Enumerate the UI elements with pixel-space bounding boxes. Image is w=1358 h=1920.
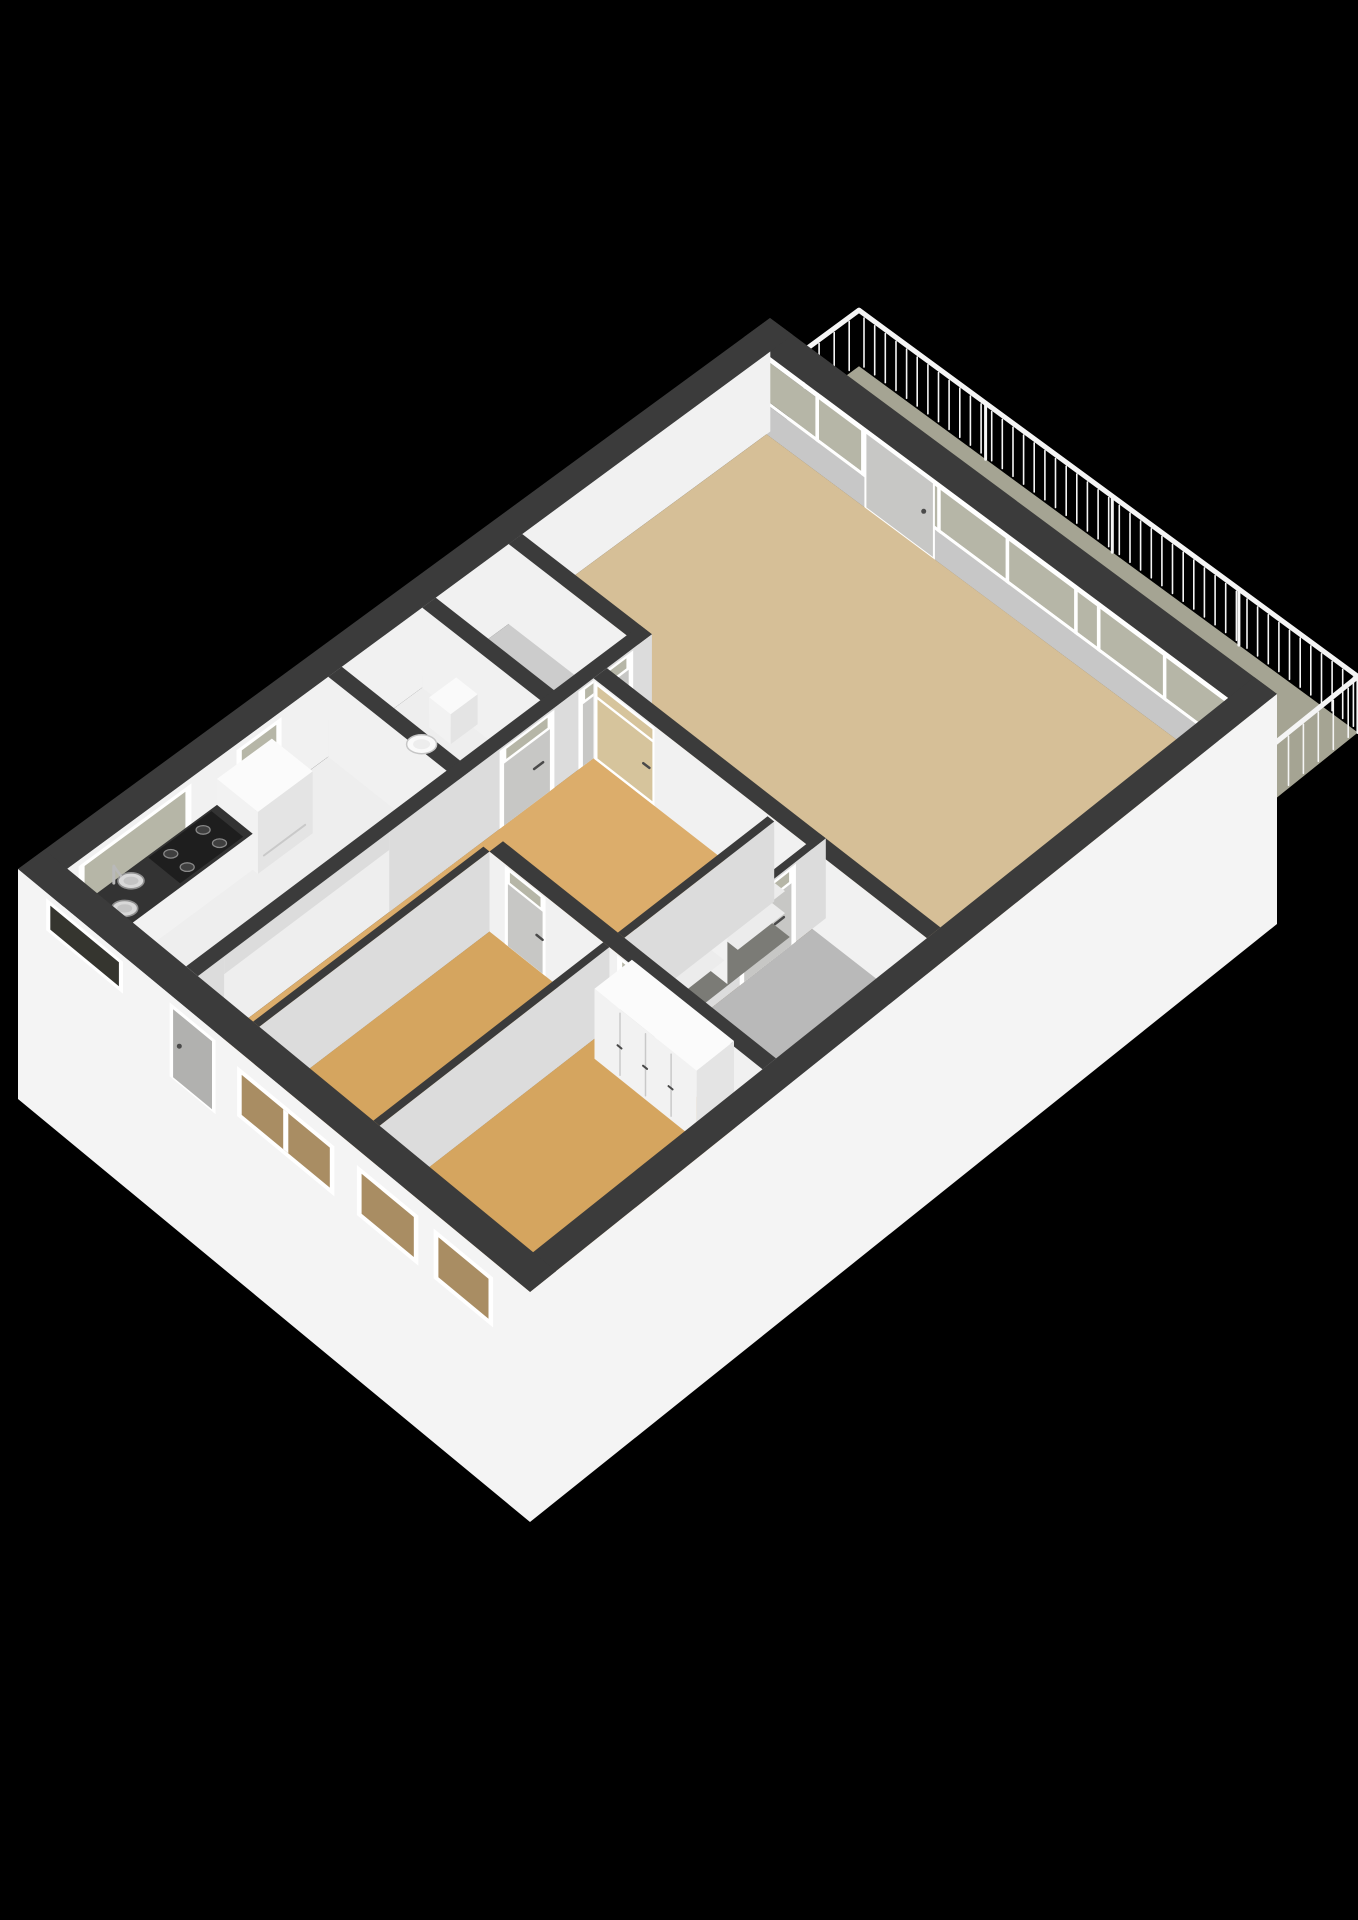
stove-burner-icon [196,826,210,835]
floorplan-3d-render: 3D isometric floor plan render of an apa… [0,0,1358,1920]
glazed-wall-mullion [1097,604,1101,653]
stove-burner-icon [213,839,227,848]
bedroom1-window-mullion [283,1109,288,1153]
stove-burner-icon [180,863,194,872]
balcony-door-handle-icon [921,509,926,514]
glazed-wall-mullion [815,395,819,444]
floorplan-svg [0,0,1358,1920]
toilet-bowl-inner [413,739,430,749]
entrance-door-handle-icon [177,1044,182,1049]
glazed-wall-mullion [1163,653,1167,702]
glazed-wall-mullion [937,485,941,534]
glazed-wall-mullion [861,429,865,478]
glazed-wall-mullion [1074,587,1078,636]
glazed-wall-mullion [1006,536,1010,585]
stove-burner-icon [164,850,178,859]
kitchen-sink-basin-inner [117,904,132,912]
kitchen-sink-basin-inner [124,877,139,885]
